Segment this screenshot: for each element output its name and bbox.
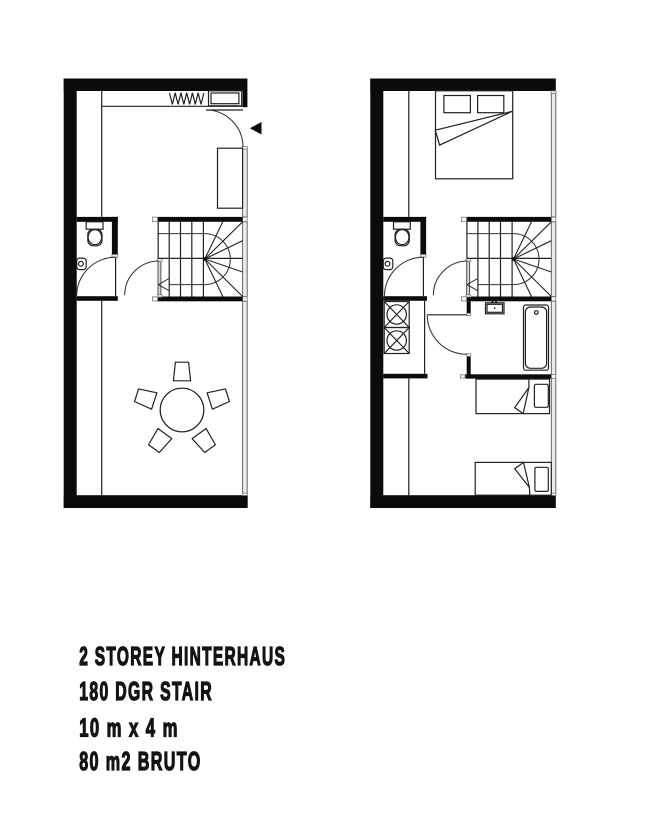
svg-text:80 m2 BRUTO: 80 m2 BRUTO (79, 747, 201, 776)
svg-text:180 DGR STAIR: 180 DGR STAIR (79, 678, 213, 706)
svg-text:10 m x 4 m: 10 m x 4 m (79, 714, 179, 742)
svg-text:2 STOREY HINTERHAUS: 2 STOREY HINTERHAUS (79, 643, 286, 671)
